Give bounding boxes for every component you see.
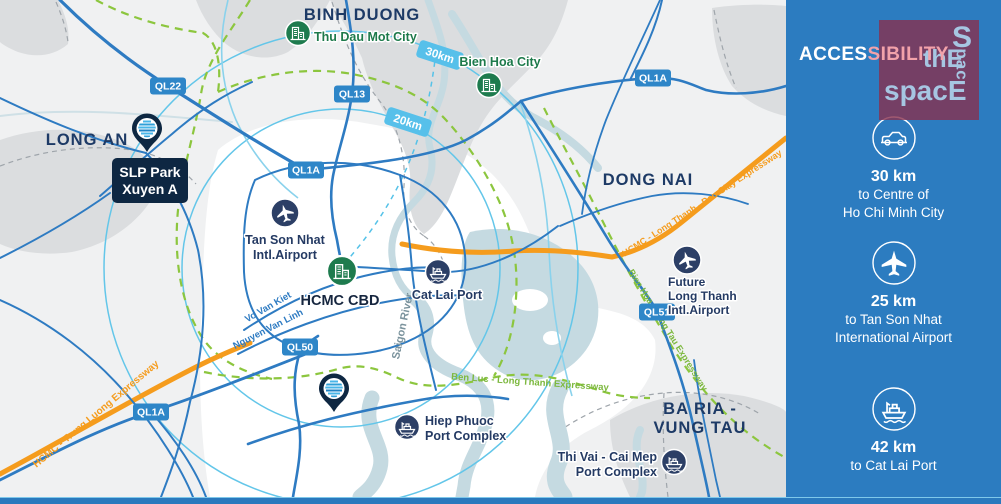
region-binh-duong: BINH DUONG: [304, 6, 420, 24]
panel-title-white: ACCES: [799, 44, 868, 65]
car-circle-icon: [871, 115, 917, 161]
distance-destination: International Airport: [786, 329, 1001, 347]
distance-destination: to Centre of: [786, 186, 1001, 204]
accessibility-panel: S pac thE spacE ACCESSIBILITY 30 km to C…: [786, 0, 1001, 497]
region-long-an: LONG AN: [46, 131, 128, 149]
svg-text:QL22: QL22: [155, 81, 181, 93]
map-svg: HCMC - Trung Luong Expressway HCMC - Lon…: [0, 0, 786, 497]
svg-text:QL1A: QL1A: [137, 407, 165, 419]
svg-text:Port Complex: Port Complex: [576, 465, 657, 479]
svg-text:SLP Park: SLP Park: [119, 164, 180, 180]
svg-text:QL1A: QL1A: [639, 73, 667, 85]
plane-circle-icon: [871, 240, 917, 286]
badge-ql1a-southwest: QL1A: [133, 404, 169, 421]
plane-icon: [881, 251, 906, 276]
svg-text:Port Complex: Port Complex: [425, 429, 506, 443]
hiep-phuoc-port: Hiep Phuoc Port Complex: [395, 414, 507, 443]
bottom-border-strip: [0, 497, 1001, 504]
ship-icon: [883, 403, 905, 422]
svg-text:QL51: QL51: [644, 307, 670, 319]
region-ba-ria-line2: VUNG TAU: [654, 419, 747, 437]
badge-ql13: QL13: [334, 86, 370, 103]
city-label: Bien Hoa City: [459, 55, 540, 69]
svg-text:Hiep Phuoc: Hiep Phuoc: [425, 414, 494, 428]
svg-text:Tan Son Nhat: Tan Son Nhat: [245, 233, 325, 247]
accessibility-item-plane: 25 km to Tan Son Nhat International Airp…: [786, 240, 1001, 346]
the-space-logo: S pac thE spacE: [879, 20, 979, 120]
badge-ql50: QL50: [282, 339, 318, 356]
region-dong-nai: DONG NAI: [603, 171, 694, 189]
distance-destination: Ho Chi Minh City: [786, 204, 1001, 222]
map-canvas: HCMC - Trung Luong Expressway HCMC - Lon…: [0, 0, 786, 497]
cbd-label: HCMC CBD: [301, 293, 380, 309]
svg-text:Intl.Airport: Intl.Airport: [668, 303, 729, 317]
badge-ql1a-north: QL1A: [635, 70, 671, 87]
distance-value: 30 km: [786, 168, 1001, 186]
panel-title-pink: SIBILITY: [868, 44, 949, 65]
ship-circle-icon: [871, 386, 917, 432]
svg-text:Future: Future: [668, 275, 706, 289]
svg-text:Xuyen A: Xuyen A: [122, 181, 178, 197]
svg-text:QL1A: QL1A: [292, 165, 320, 177]
svg-text:QL50: QL50: [287, 342, 313, 354]
logo-space-text: spacE: [884, 77, 967, 105]
slp-park-accessibility-infographic: HCMC - Trung Luong Expressway HCMC - Lon…: [0, 0, 1001, 504]
distance-destination: to Tan Son Nhat: [786, 311, 1001, 329]
distance-destination: to Cat Lai Port: [786, 457, 1001, 475]
svg-text:QL13: QL13: [339, 89, 365, 101]
svg-text:Long Thanh: Long Thanh: [668, 289, 737, 303]
car-icon: [881, 133, 907, 145]
badge-ql1a-city: QL1A: [288, 162, 324, 179]
accessibility-item-ship: 42 km to Cat Lai Port: [786, 386, 1001, 475]
svg-text:Cat Lai Port: Cat Lai Port: [412, 288, 483, 302]
badge-ql22: QL22: [150, 78, 186, 95]
svg-text:Intl.Airport: Intl.Airport: [253, 248, 318, 262]
slp-park-label: SLP Park Xuyen A: [112, 158, 188, 203]
distance-value: 42 km: [786, 439, 1001, 457]
city-label: Thu Dau Mot City: [314, 30, 417, 44]
distance-value: 25 km: [786, 293, 1001, 311]
region-ba-ria-line1: BA RIA -: [663, 400, 737, 418]
accessibility-item-car: 30 km to Centre of Ho Chi Minh City: [786, 115, 1001, 221]
panel-title: ACCESSIBILITY: [799, 44, 949, 66]
svg-text:Thi Vai - Cai Mep: Thi Vai - Cai Mep: [558, 450, 658, 464]
